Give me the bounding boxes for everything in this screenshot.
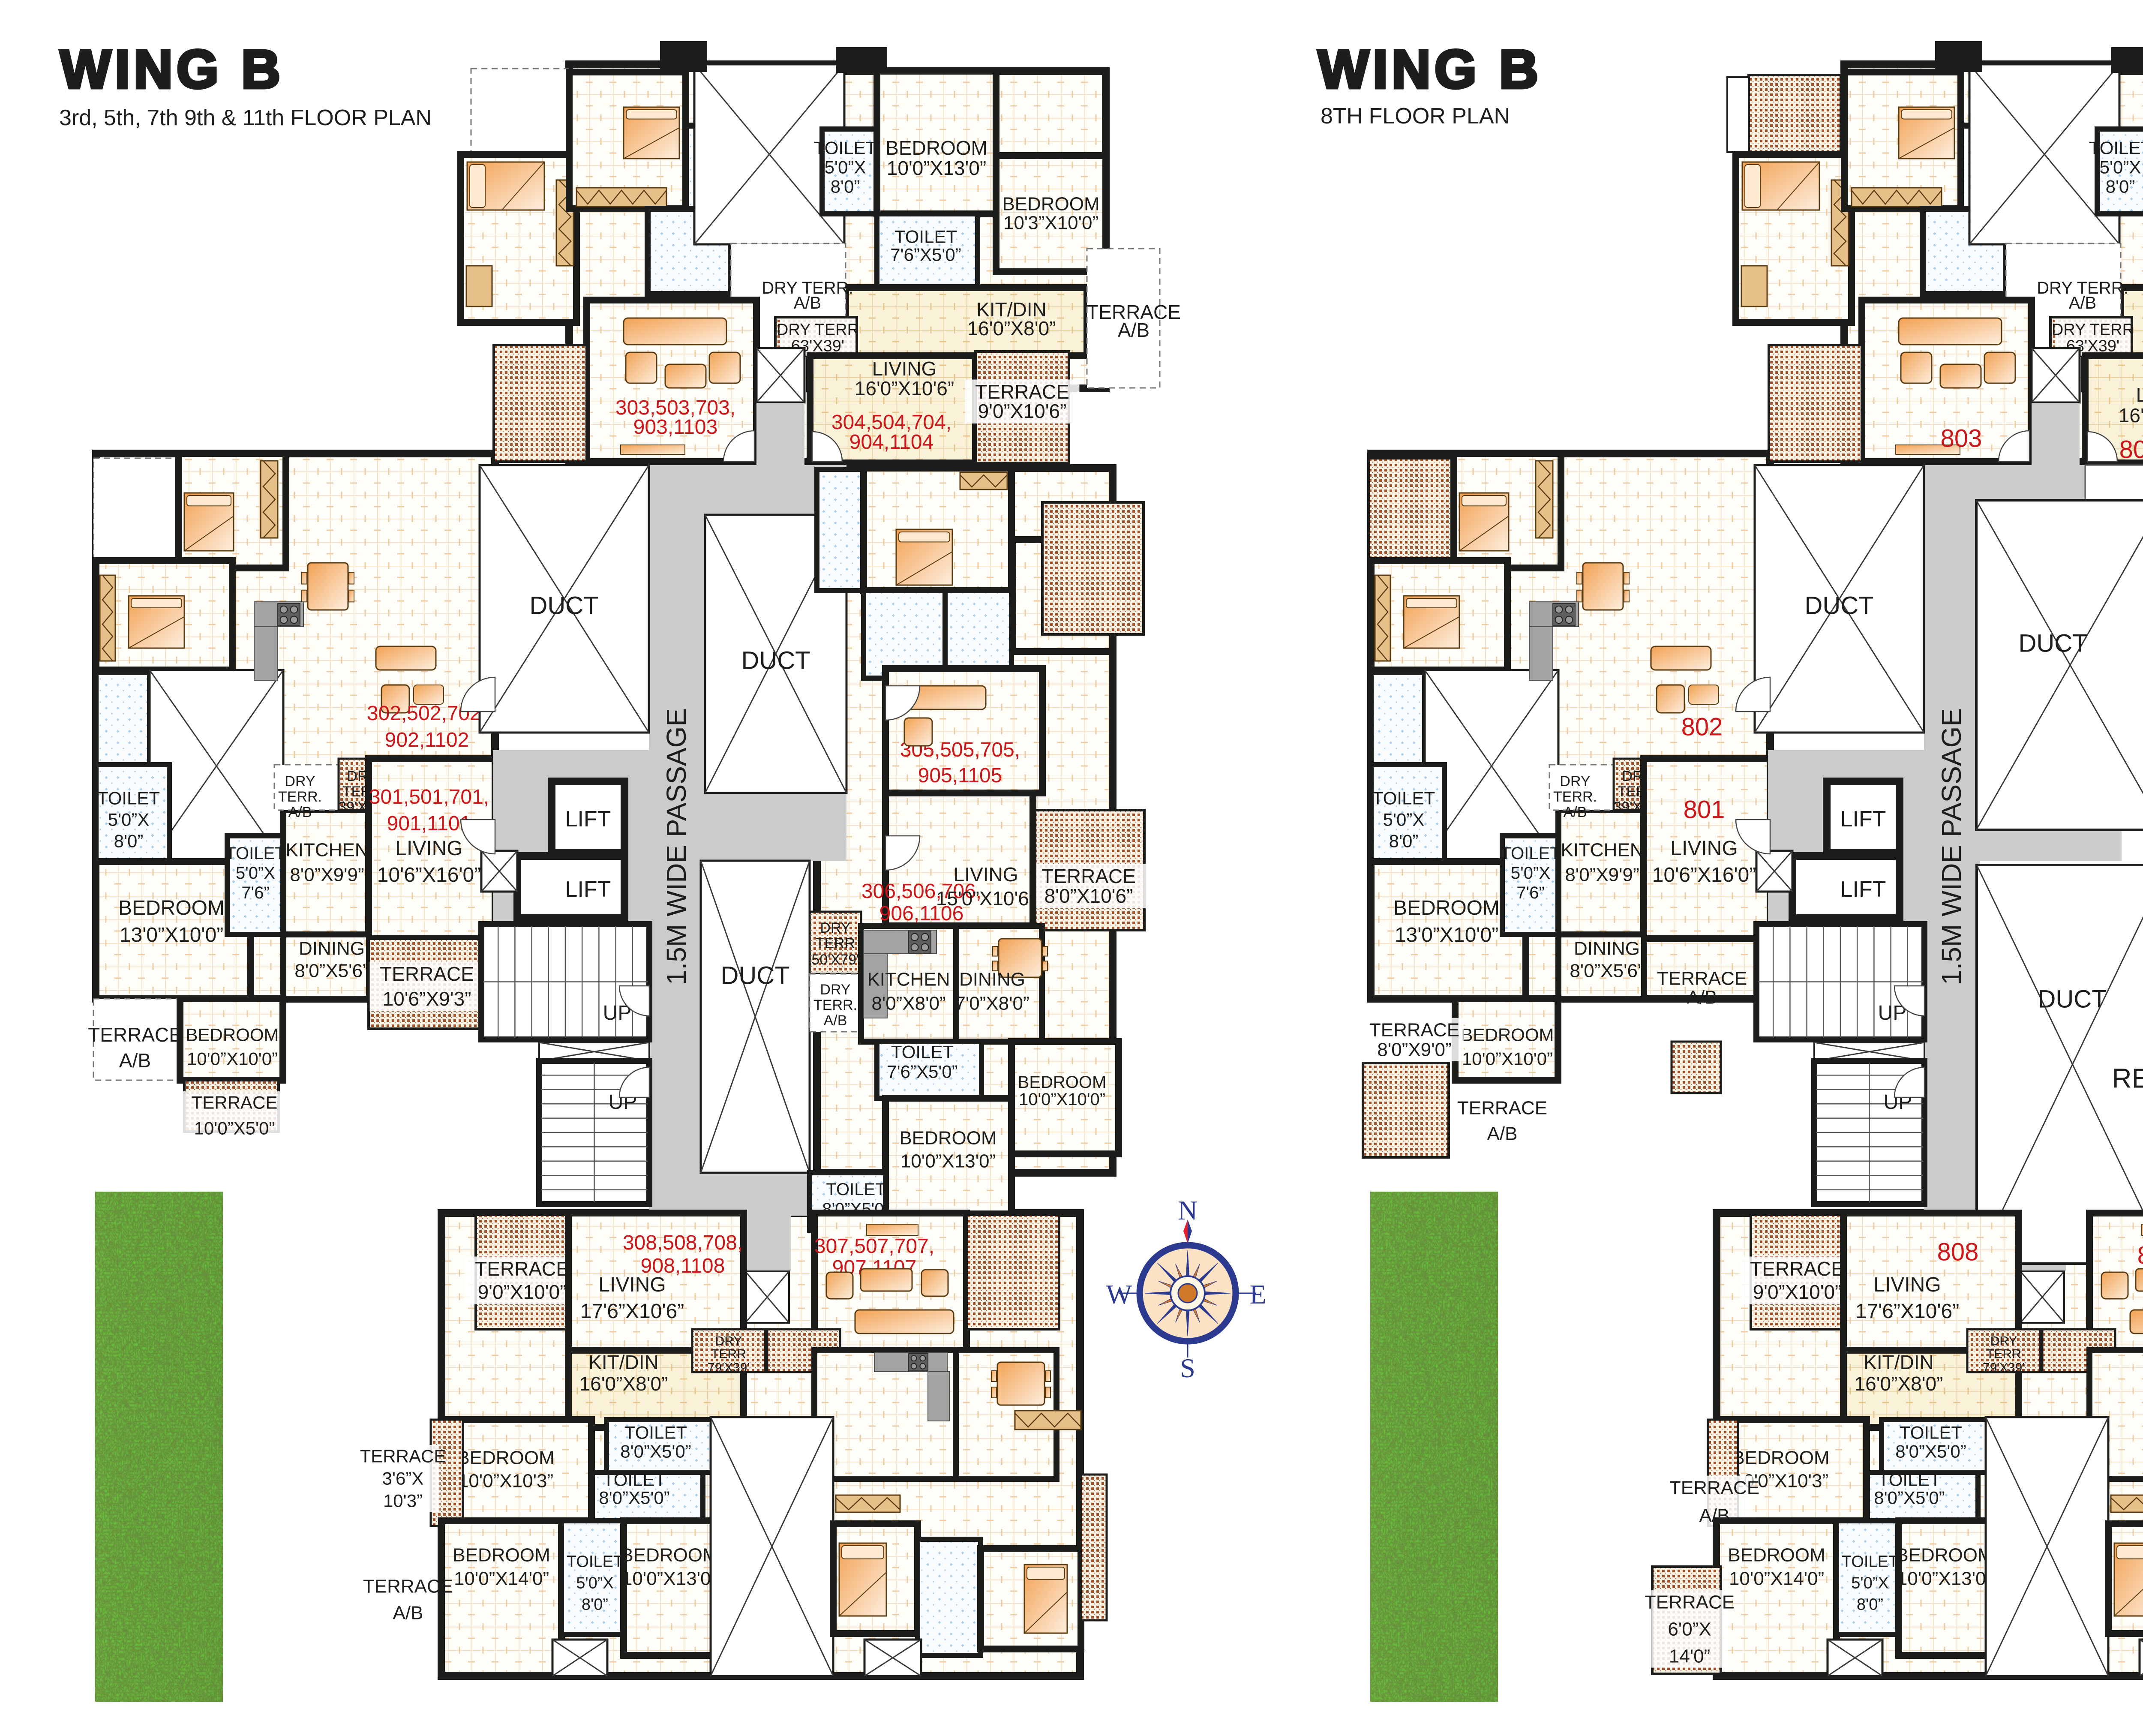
svg-text:79'X39': 79'X39'	[708, 1361, 750, 1375]
svg-text:8'0”: 8'0”	[2106, 177, 2135, 197]
svg-text:10'0”X5'0”: 10'0”X5'0”	[194, 1118, 275, 1138]
svg-text:A/B: A/B	[1118, 319, 1150, 341]
svg-text:A/B: A/B	[1687, 987, 1717, 1008]
svg-text:902,1102: 902,1102	[385, 729, 469, 751]
svg-text:DRY: DRY	[1560, 773, 1590, 790]
svg-text:903,1103: 903,1103	[633, 416, 718, 439]
svg-text:TERR: TERR	[816, 935, 855, 952]
svg-text:KITCHEN: KITCHEN	[285, 839, 368, 860]
svg-text:9'0”X10'0”: 9'0”X10'0”	[478, 1281, 567, 1303]
svg-text:TERR: TERR	[711, 1347, 746, 1361]
svg-text:9'0”X10'0”: 9'0”X10'0”	[1753, 1281, 1842, 1303]
svg-text:803: 803	[1941, 424, 1982, 452]
svg-text:BEDROOM: BEDROOM	[1732, 1447, 1829, 1468]
svg-text:TOILET: TOILET	[603, 1470, 666, 1490]
svg-text:1.5M WIDE PASSAGE: 1.5M WIDE PASSAGE	[1936, 708, 1967, 985]
svg-text:W: W	[1106, 1279, 1132, 1310]
svg-text:DUCT: DUCT	[2018, 629, 2087, 657]
svg-text:10'0”X14'0”: 10'0”X14'0”	[454, 1568, 549, 1589]
svg-text:10'6”X9'3”: 10'6”X9'3”	[383, 988, 471, 1010]
svg-text:13'0”X10'0”: 13'0”X10'0”	[1395, 924, 1498, 946]
svg-text:DINING: DINING	[1574, 938, 1640, 959]
svg-text:904,1104: 904,1104	[849, 431, 934, 454]
svg-text:A/B: A/B	[119, 1049, 151, 1072]
svg-text:5'0”X: 5'0”X	[1851, 1574, 1889, 1592]
svg-text:10'3”: 10'3”	[383, 1491, 423, 1511]
svg-text:8'0”X8'0”: 8'0”X8'0”	[871, 993, 945, 1014]
svg-text:16'0”X10'6”: 16'0”X10'6”	[2119, 404, 2143, 426]
svg-text:10'3”X10'0”: 10'3”X10'0”	[1003, 212, 1099, 233]
svg-text:BEDROOM: BEDROOM	[118, 897, 225, 919]
svg-text:7'0”X8'0”: 7'0”X8'0”	[955, 993, 1029, 1014]
svg-text:307,507,707,: 307,507,707,	[814, 1235, 934, 1258]
svg-text:WING B: WING B	[1318, 39, 1542, 99]
svg-text:KITCHEN: KITCHEN	[867, 969, 950, 990]
svg-text:BEDROOM: BEDROOM	[1728, 1544, 1825, 1565]
svg-text:TERRACE: TERRACE	[360, 1446, 446, 1466]
svg-text:TERRACE: TERRACE	[1645, 1592, 1735, 1613]
svg-text:TERR: TERR	[1986, 1347, 2021, 1361]
svg-text:LIVING: LIVING	[1670, 837, 1738, 860]
svg-text:BEDROOM: BEDROOM	[186, 1025, 279, 1045]
svg-text:LIFT: LIFT	[565, 807, 611, 832]
svg-text:S: S	[1180, 1353, 1195, 1383]
svg-text:LIVING: LIVING	[395, 837, 462, 860]
svg-text:8'0”X5'0”: 8'0”X5'0”	[1895, 1442, 1966, 1462]
svg-text:A/B: A/B	[1487, 1123, 1518, 1144]
svg-text:TERRACE: TERRACE	[1369, 1019, 1459, 1040]
svg-text:6'0”X: 6'0”X	[1668, 1619, 1711, 1640]
svg-text:TOILET: TOILET	[1372, 788, 1435, 808]
svg-text:17'6”X10'6”: 17'6”X10'6”	[1855, 1300, 1959, 1323]
svg-text:TOILET: TOILET	[891, 1042, 954, 1062]
svg-text:TERRACE: TERRACE	[192, 1093, 278, 1113]
svg-text:DUCT: DUCT	[741, 646, 810, 674]
svg-text:TOILET: TOILET	[2089, 138, 2143, 158]
svg-text:DINING: DINING	[299, 938, 365, 959]
svg-text:TERRACE: TERRACE	[88, 1024, 182, 1046]
svg-text:TERR.: TERR.	[813, 997, 857, 1013]
svg-text:3'6”X: 3'6”X	[382, 1469, 424, 1489]
svg-text:TERRACE: TERRACE	[1750, 1258, 1844, 1280]
svg-text:8'0”X9'9”: 8'0”X9'9”	[1565, 864, 1639, 885]
svg-text:5'0”X: 5'0”X	[825, 157, 866, 177]
svg-text:BEDROOM: BEDROOM	[1896, 1544, 1993, 1565]
svg-text:8'0”X9'9”: 8'0”X9'9”	[290, 864, 364, 885]
svg-text:KIT/DIN: KIT/DIN	[1864, 1351, 1934, 1373]
svg-text:A/B: A/B	[2069, 294, 2096, 312]
svg-text:8'0”X5'6”: 8'0”X5'6”	[1570, 960, 1644, 981]
svg-text:DRY TERR: DRY TERR	[2052, 321, 2134, 339]
svg-text:10'0”X10'0”: 10'0”X10'0”	[187, 1049, 278, 1069]
svg-text:16'0”X8'0”: 16'0”X8'0”	[1855, 1373, 1943, 1395]
svg-text:TOILET: TOILET	[1878, 1470, 1941, 1490]
svg-text:TERR.: TERR.	[1553, 789, 1597, 805]
svg-text:8'0”: 8'0”	[831, 177, 860, 197]
svg-text:BEDROOM: BEDROOM	[457, 1447, 554, 1468]
svg-text:10'0”X13'0”: 10'0”X13'0”	[1897, 1568, 1992, 1589]
svg-text:8'0”X10'6”: 8'0”X10'6”	[1044, 885, 1133, 907]
svg-text:8'0”: 8'0”	[1389, 831, 1419, 851]
svg-text:E: E	[1249, 1279, 1266, 1310]
svg-text:1.5M WIDE PASSAGE: 1.5M WIDE PASSAGE	[661, 708, 692, 985]
svg-text:A/B: A/B	[794, 294, 821, 312]
svg-text:LIVING: LIVING	[2136, 384, 2143, 406]
svg-text:14'0”: 14'0”	[1669, 1646, 1710, 1667]
svg-text:3rd, 5th, 7th 9th & 11th FLOOR: 3rd, 5th, 7th 9th & 11th FLOOR PLAN	[59, 105, 432, 130]
svg-text:TERRACE: TERRACE	[380, 963, 474, 985]
svg-text:TERR.: TERR.	[278, 789, 322, 805]
svg-text:79'X39': 79'X39'	[1983, 1361, 2025, 1375]
svg-text:A/B: A/B	[393, 1602, 423, 1623]
svg-text:TOILET: TOILET	[1842, 1553, 1898, 1571]
svg-text:801: 801	[1684, 796, 1725, 823]
svg-text:TOILET: TOILET	[1900, 1423, 1962, 1443]
svg-text:BEDROOM: BEDROOM	[1018, 1073, 1107, 1092]
svg-text:5'0”X: 5'0”X	[2100, 157, 2141, 177]
svg-text:DUCT: DUCT	[529, 592, 598, 619]
svg-text:LIVING: LIVING	[1873, 1273, 1941, 1296]
svg-text:DRY: DRY	[285, 773, 315, 790]
svg-text:BEDROOM: BEDROOM	[1002, 193, 1099, 214]
svg-text:DUCT: DUCT	[1804, 592, 1873, 619]
svg-text:8'0”X5'0”: 8'0”X5'0”	[1874, 1488, 1945, 1508]
svg-text:LIVING: LIVING	[598, 1273, 666, 1296]
svg-text:8'0”X5'0”: 8'0”X5'0”	[599, 1488, 669, 1508]
svg-text:REFUGE AREA: REFUGE AREA	[2112, 1063, 2143, 1093]
svg-text:LIFT: LIFT	[565, 877, 611, 902]
svg-text:10'6”X16'0”: 10'6”X16'0”	[1652, 864, 1756, 886]
svg-text:5'0”X: 5'0”X	[576, 1574, 614, 1592]
svg-text:50'X79': 50'X79'	[811, 952, 859, 968]
svg-text:TERRACE: TERRACE	[1669, 1477, 1759, 1498]
svg-text:16'0”X8'0”: 16'0”X8'0”	[967, 317, 1056, 339]
svg-text:10'0”X13'0”: 10'0”X13'0”	[622, 1568, 717, 1589]
svg-text:5'0”X: 5'0”X	[1383, 810, 1425, 830]
svg-text:13'0”X10'0”: 13'0”X10'0”	[120, 924, 223, 946]
svg-text:BEDROOM: BEDROOM	[621, 1544, 718, 1565]
svg-text:10'0”X10'3”: 10'0”X10'3”	[458, 1470, 553, 1491]
svg-text:A/B: A/B	[288, 804, 312, 820]
svg-text:TOILET: TOILET	[225, 844, 285, 863]
svg-text:BEDROOM: BEDROOM	[1393, 897, 1500, 919]
svg-text:5'0”X: 5'0”X	[236, 864, 275, 883]
svg-text:TOILET: TOILET	[567, 1553, 623, 1571]
svg-text:KITCHEN: KITCHEN	[1561, 839, 1643, 860]
svg-text:TOILET: TOILET	[826, 1180, 885, 1199]
svg-text:7'6”X5'0”: 7'6”X5'0”	[890, 245, 961, 265]
svg-text:DRY: DRY	[715, 1334, 742, 1349]
svg-text:10'6”X16'0”: 10'6”X16'0”	[377, 864, 481, 886]
svg-text:TOILET: TOILET	[894, 227, 957, 247]
svg-text:8'0”X5'0”: 8'0”X5'0”	[620, 1442, 691, 1462]
svg-text:17'6”X10'6”: 17'6”X10'6”	[580, 1300, 684, 1323]
svg-text:LIFT: LIFT	[1840, 877, 1886, 902]
svg-text:308,508,708,: 308,508,708,	[623, 1231, 743, 1254]
svg-text:905,1105: 905,1105	[918, 764, 1002, 787]
svg-text:5'0”X: 5'0”X	[108, 810, 150, 830]
svg-text:DUCT: DUCT	[720, 961, 789, 989]
svg-text:5'0”X: 5'0”X	[1511, 864, 1550, 883]
svg-text:TERRACE: TERRACE	[363, 1576, 453, 1597]
svg-text:BEDROOM: BEDROOM	[885, 137, 987, 159]
svg-text:10'0”X10'0”: 10'0”X10'0”	[1462, 1049, 1553, 1069]
svg-text:10'0”X13'0”: 10'0”X13'0”	[887, 157, 986, 179]
svg-text:BEDROOM: BEDROOM	[899, 1127, 996, 1148]
svg-text:KIT/DIN: KIT/DIN	[588, 1351, 659, 1373]
svg-text:TOILET: TOILET	[1501, 844, 1560, 863]
svg-text:TERRACE: TERRACE	[1457, 1097, 1547, 1118]
svg-text:804: 804	[2119, 436, 2143, 463]
svg-text:8'0”X5'6”: 8'0”X5'6”	[294, 960, 369, 981]
svg-text:10'0”X14'0”: 10'0”X14'0”	[1729, 1568, 1824, 1589]
svg-text:10'0”X13'0”: 10'0”X13'0”	[900, 1150, 996, 1171]
svg-text:8'0”: 8'0”	[582, 1595, 608, 1613]
svg-text:301,501,701,: 301,501,701,	[369, 786, 489, 808]
svg-text:LIVING: LIVING	[872, 357, 937, 380]
svg-text:10'0”X10'0”: 10'0”X10'0”	[1019, 1090, 1105, 1109]
svg-text:WING B: WING B	[60, 39, 284, 99]
svg-text:TERRACE: TERRACE	[1657, 968, 1747, 989]
svg-text:802: 802	[1681, 713, 1723, 741]
svg-text:901,1101: 901,1101	[387, 812, 471, 835]
svg-text:8'0”: 8'0”	[1857, 1595, 1883, 1613]
svg-text:TOILET: TOILET	[97, 788, 160, 808]
svg-text:7'6”: 7'6”	[241, 883, 269, 902]
svg-text:A/B: A/B	[824, 1012, 847, 1029]
svg-text:808: 808	[1937, 1238, 1979, 1266]
svg-text:807: 807	[2137, 1241, 2143, 1269]
svg-text:BEDROOM: BEDROOM	[1461, 1025, 1554, 1045]
svg-text:TERRACE: TERRACE	[475, 1258, 569, 1280]
svg-text:15'0”X10'6”: 15'0”X10'6”	[936, 887, 1035, 910]
svg-text:DINING: DINING	[959, 969, 1025, 990]
svg-text:LIVING: LIVING	[954, 863, 1018, 886]
svg-text:8'0”: 8'0”	[114, 831, 144, 851]
svg-text:N: N	[1178, 1195, 1198, 1225]
svg-text:LIFT: LIFT	[1840, 807, 1886, 832]
svg-text:TOILET: TOILET	[814, 138, 876, 158]
svg-text:7'6”: 7'6”	[1516, 883, 1544, 902]
svg-text:8'0”X9'0”: 8'0”X9'0”	[1377, 1039, 1451, 1060]
svg-text:16'0”X10'6”: 16'0”X10'6”	[855, 377, 954, 399]
svg-text:DRY: DRY	[820, 982, 850, 998]
svg-text:9'0”X10'6”: 9'0”X10'6”	[978, 400, 1067, 422]
svg-text:DUCT: DUCT	[2038, 985, 2107, 1013]
svg-text:DRY: DRY	[820, 920, 850, 936]
svg-text:7'6”X5'0”: 7'6”X5'0”	[887, 1062, 957, 1082]
svg-text:16'0”X8'0”: 16'0”X8'0”	[579, 1373, 668, 1395]
svg-text:DRY: DRY	[1990, 1334, 2017, 1349]
svg-text:DRY TERR: DRY TERR	[777, 321, 859, 339]
svg-text:A/B: A/B	[1564, 804, 1587, 820]
svg-text:8TH FLOOR PLAN: 8TH FLOOR PLAN	[1321, 104, 1510, 129]
svg-text:BEDROOM: BEDROOM	[453, 1544, 550, 1565]
svg-text:TOILET: TOILET	[624, 1423, 687, 1443]
svg-text:TERRACE: TERRACE	[1041, 865, 1136, 887]
